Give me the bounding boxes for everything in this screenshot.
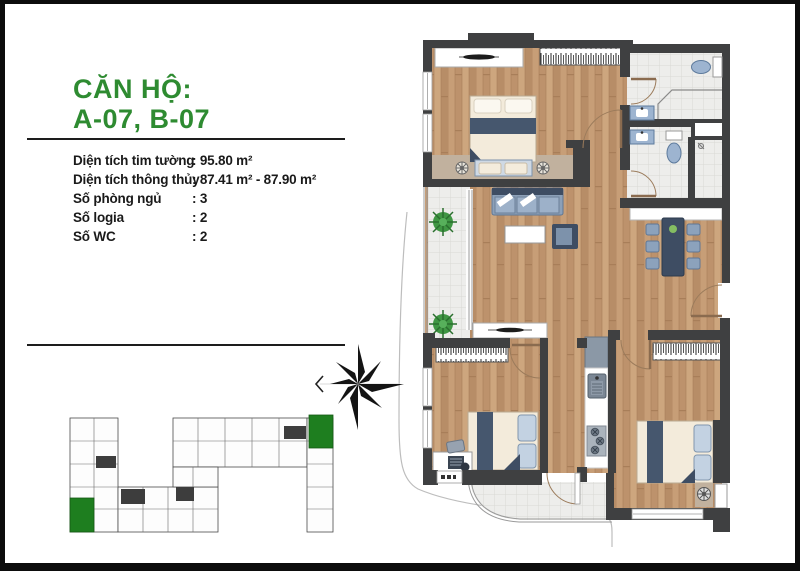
- sofa: [492, 188, 563, 215]
- kitchen: [585, 337, 608, 468]
- wardrobe: [540, 48, 623, 65]
- coffee-table: [505, 226, 545, 243]
- double-bed: [637, 421, 713, 483]
- double-bed: [468, 412, 538, 470]
- sink: [630, 106, 654, 120]
- double-bed: [470, 96, 536, 162]
- table-bowl: [669, 225, 677, 233]
- shower-head: [698, 143, 704, 149]
- wardrobe: [653, 343, 723, 360]
- toilet-tank: [713, 57, 722, 77]
- floor-plan: [423, 33, 732, 532]
- stove: [587, 426, 606, 456]
- loggia-2-floor: [470, 480, 612, 520]
- keyplan: [70, 415, 333, 532]
- toilet-tank: [666, 131, 682, 140]
- fan: [698, 488, 711, 501]
- toilet: [692, 61, 711, 74]
- floor-plan-brochure: CĂN HỘ: A-07, B-07 Diện tích tim tường: …: [0, 0, 800, 571]
- sink: [630, 130, 654, 144]
- tv-console: [473, 323, 547, 338]
- armchair: [552, 224, 578, 249]
- plan-graphics: [0, 0, 800, 571]
- toilet: [667, 143, 681, 163]
- fridge: [585, 337, 608, 368]
- plant: [429, 208, 457, 236]
- keyplan-unit-b07: [309, 415, 333, 448]
- keyplan-unit-a07: [70, 498, 94, 532]
- stool: [456, 162, 468, 174]
- stool: [537, 162, 549, 174]
- kitchen-sink: [588, 374, 606, 398]
